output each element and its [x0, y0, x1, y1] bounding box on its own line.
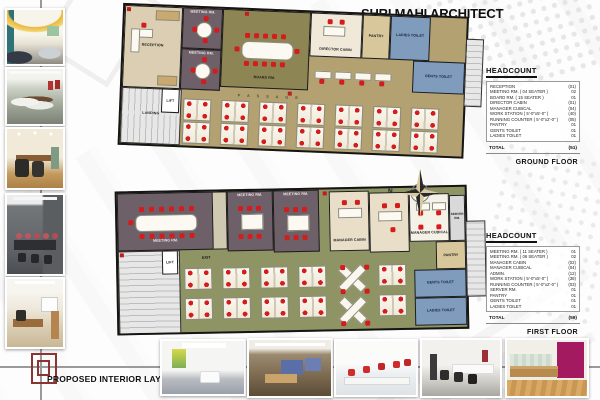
photo-detail [15, 281, 55, 284]
ff-room-pantry: PANTRY [436, 241, 467, 270]
photo-detail [510, 366, 558, 377]
ff-room-meeting-6a: MEETING RM. [227, 190, 274, 251]
headcount-title: HEADCOUNT [486, 66, 537, 78]
photo-meeting-room-white-chairs [5, 67, 65, 126]
photo-detail [172, 349, 186, 368]
photo-detail [55, 80, 60, 89]
photo-detail [47, 26, 59, 36]
room-label: GENTS TOILET [415, 280, 465, 285]
room-label: DIRECTOR CABIN [311, 46, 361, 52]
gf-building-outline: RECEPTION MEETING RM. MEETING RM. [118, 3, 469, 159]
room-label: GENTS TOILET [414, 74, 464, 80]
photo-detail [9, 71, 61, 74]
headcount-table: MEETING RM. ( 11 SEATER ) 01 MEETING RM.… [486, 246, 580, 312]
gf-room-gents-toilet: GENTS TOILET [412, 61, 465, 95]
photo-meeting-room-pink-chairs [5, 193, 65, 276]
ff-lift: LIFT [162, 250, 178, 274]
room-label: SERVER RM. [450, 212, 464, 221]
photo-detail [265, 374, 297, 383]
photo-cabin-whiteboard [5, 277, 65, 349]
headcount-title: HEADCOUNT [486, 231, 537, 243]
ff-stairs-right [465, 220, 486, 296]
photo-detail [440, 370, 449, 380]
photo-detail [348, 369, 355, 376]
photo-detail [305, 358, 321, 371]
photo-lounge-room [160, 339, 246, 396]
room-label: MEETING RM. [228, 192, 272, 197]
room-label: MANAGER CABIN [331, 238, 369, 243]
photo-detail [200, 371, 220, 383]
photo-detail [510, 354, 552, 366]
first-floor-headcount: HEADCOUNT MEETING RM. ( 11 SEATER ) 01 M… [486, 225, 580, 336]
photo-detail [48, 81, 53, 90]
room-label: MANAGER CUBICAL [410, 230, 448, 235]
photo-cubicles-blue-partitions [247, 338, 333, 398]
gf-room-meeting-1: MEETING RM. [182, 7, 224, 50]
photo-detail [16, 233, 22, 239]
gf-room-pantry: PANTRY [361, 15, 391, 60]
photo-open-office-red-chairs [334, 339, 418, 397]
photo-detail [281, 360, 303, 375]
photo-detail [344, 377, 410, 385]
headcount-total-row: TOTAL (59) [486, 315, 580, 324]
photo-detail [15, 159, 29, 177]
photo-detail [182, 343, 226, 348]
photo-detail [507, 380, 587, 396]
photo-pantry-magenta-wall [505, 338, 589, 398]
gf-room-ladies-toilet: LADIES TOILET [389, 16, 431, 62]
ff-room-manager-cabin-1: MANAGER CABIN [329, 191, 370, 252]
photo-detail [18, 253, 26, 262]
photo-detail [41, 297, 58, 312]
photo-detail [51, 147, 59, 169]
room-label: MEETING RM. [119, 238, 213, 244]
ff-exit-label: EXIT [202, 256, 211, 260]
room-label: LADIES TOILET [416, 308, 466, 313]
floor-label: GROUND FLOOR [486, 159, 580, 166]
headcount-row: LADIES TOILET 01 [490, 304, 576, 309]
photo-detail [13, 197, 57, 200]
room-label: PANTRY [437, 253, 465, 258]
total-label: TOTAL [489, 146, 505, 151]
photo-detail [482, 350, 488, 362]
ground-floor-plan: RECEPTION MEETING RM. MEETING RM. [116, 4, 482, 172]
photo-detail [51, 311, 59, 339]
gf-lift: LIFT [161, 88, 180, 113]
photo-detail [32, 161, 44, 177]
floor-label: FIRST FLOOR [486, 329, 580, 336]
headcount-row-label: LADIES TOILET [490, 133, 521, 138]
room-label: BOARD RM. [221, 74, 307, 82]
room-label: MEETING RM. [274, 192, 318, 197]
ff-room-meeting-6b: MEETING RM. [273, 190, 320, 253]
room-label: LIFT [163, 260, 177, 264]
photo-reception-interior [5, 8, 65, 66]
room-label: MEETING RM. [182, 50, 220, 56]
photo-detail [557, 342, 584, 378]
gf-stairs-right [463, 39, 484, 108]
headcount-row-label: LADIES TOILET [490, 304, 521, 309]
headcount-row-value: 01 [571, 304, 576, 309]
ff-corridor [213, 191, 228, 249]
room-label: LIFT [162, 99, 178, 104]
headcount-row: LADIES TOILET 01 [490, 133, 576, 138]
gf-room-meeting-2: MEETING RM. [180, 48, 222, 91]
headcount-total-row: TOTAL (51) [486, 145, 580, 154]
photo-detail [430, 354, 437, 380]
gf-room-reception: RECEPTION [122, 5, 183, 89]
photo-detail [14, 240, 56, 250]
total-value: (51) [568, 146, 577, 151]
photo-detail [16, 310, 26, 321]
ff-room-gents-toilet: GENTS TOILET [414, 269, 467, 298]
compass-rose-icon [398, 166, 442, 220]
photo-cabin-wooden-desk [5, 127, 65, 190]
ff-room-meeting-11: MEETING RM. [117, 192, 214, 252]
headcount-table: RECEPTION (01) MEETING RM. ( 04 SEATER )… [486, 81, 580, 142]
ff-room-ladies-toilet: LADIES TOILET [415, 297, 468, 326]
gf-room-director-cabin: DIRECTOR CABIN [309, 12, 363, 58]
total-label: TOTAL [489, 316, 505, 321]
photo-detail [255, 343, 325, 346]
presentation-board: SHRI MAHI ARCHITECT PROPOSED INTERIOR LA… [0, 0, 600, 400]
headcount-row-value: 01 [571, 133, 576, 138]
total-value: (59) [568, 316, 577, 321]
photo-detail [452, 364, 494, 374]
ff-room-server: SERVER RM. [449, 195, 466, 241]
room-label: MEETING RM. [184, 9, 222, 15]
gf-room-board: BOARD RM. [220, 9, 311, 90]
ground-floor-headcount: HEADCOUNT RECEPTION (01) MEETING RM. ( 0… [486, 60, 580, 166]
room-label: PANTRY [363, 34, 389, 39]
compass-north-label: N [388, 188, 393, 195]
room-label: LADIES TOILET [391, 33, 429, 39]
photo-office-dark-chairs [420, 338, 502, 398]
